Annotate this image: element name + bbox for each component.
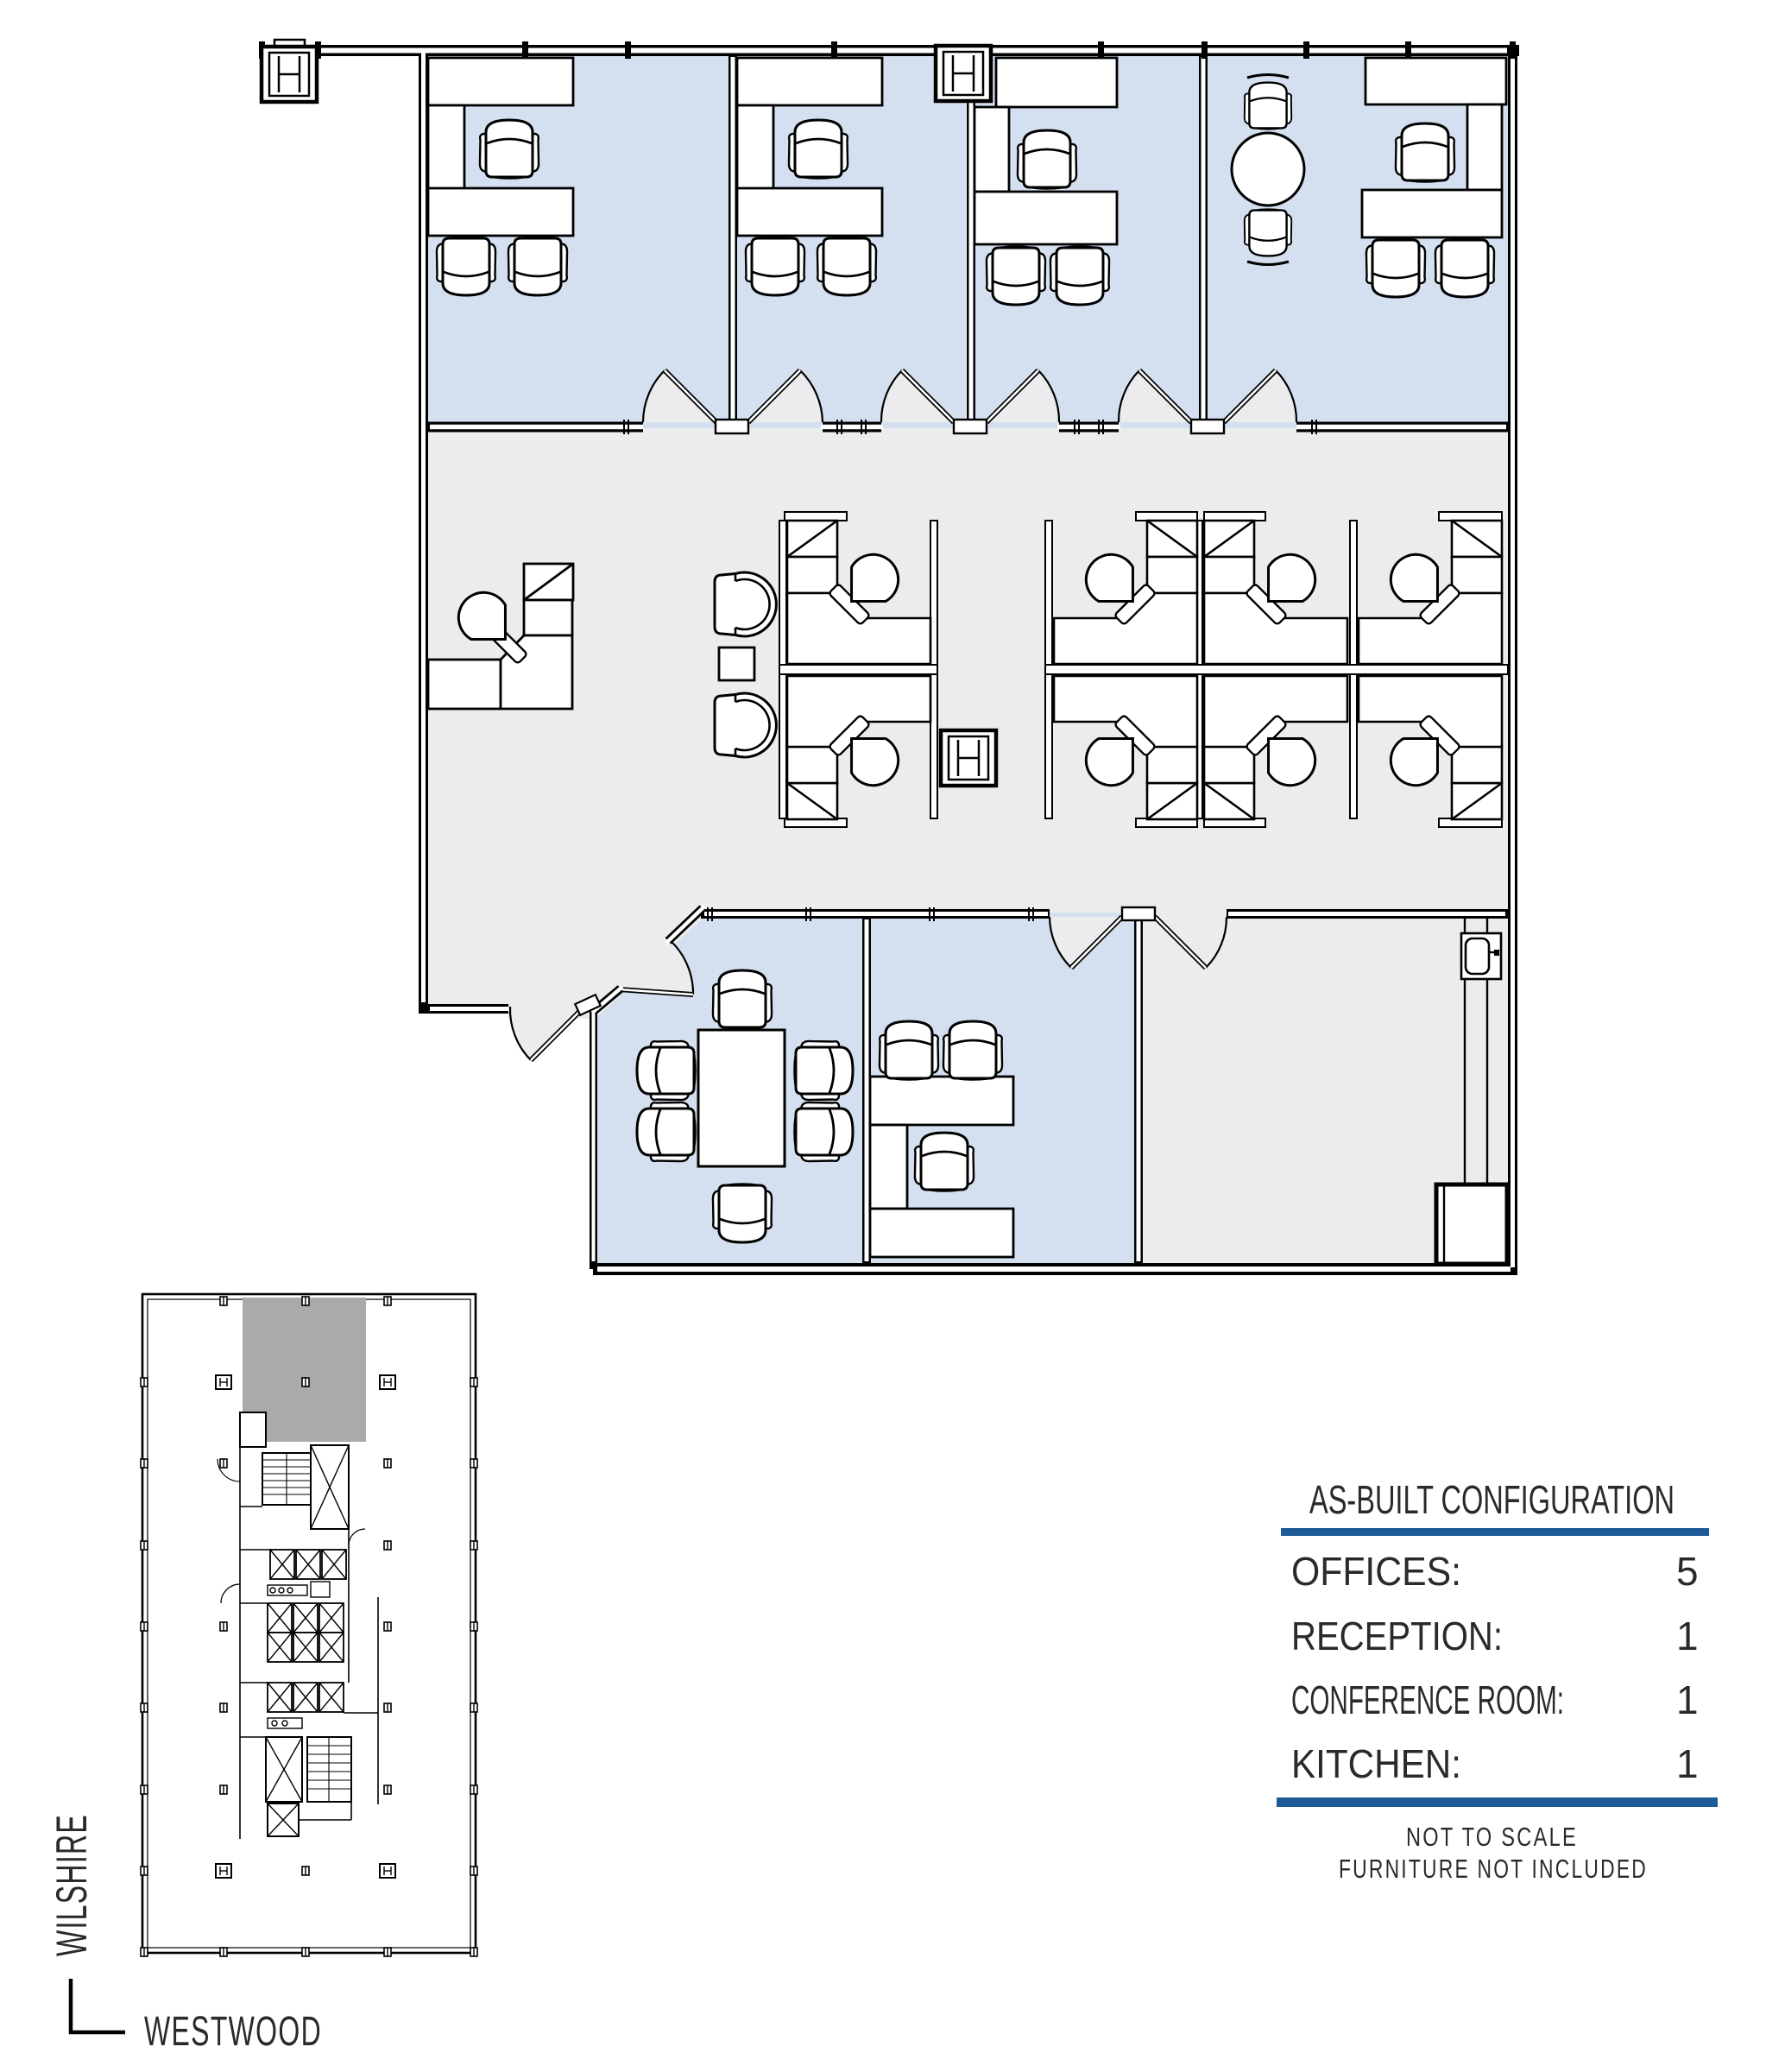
svg-text:AS-BUILT CONFIGURATION: AS-BUILT CONFIGURATION <box>1309 1477 1675 1522</box>
svg-text:1: 1 <box>1676 1677 1699 1722</box>
svg-text:1: 1 <box>1676 1614 1699 1658</box>
svg-text:5: 5 <box>1676 1549 1699 1594</box>
svg-text:OFFICES:: OFFICES: <box>1291 1549 1461 1594</box>
svg-text:WILSHIRE: WILSHIRE <box>47 1814 96 1956</box>
svg-text:KITCHEN:: KITCHEN: <box>1291 1741 1461 1786</box>
svg-text:NOT TO SCALE: NOT TO SCALE <box>1406 1822 1578 1852</box>
svg-text:FURNITURE NOT INCLUDED: FURNITURE NOT INCLUDED <box>1339 1854 1648 1884</box>
svg-text:CONFERENCE ROOM:: CONFERENCE ROOM: <box>1291 1677 1564 1722</box>
svg-text:WESTWOOD: WESTWOOD <box>144 2009 322 2055</box>
svg-text:RECEPTION:: RECEPTION: <box>1291 1614 1503 1658</box>
svg-text:1: 1 <box>1676 1741 1699 1786</box>
